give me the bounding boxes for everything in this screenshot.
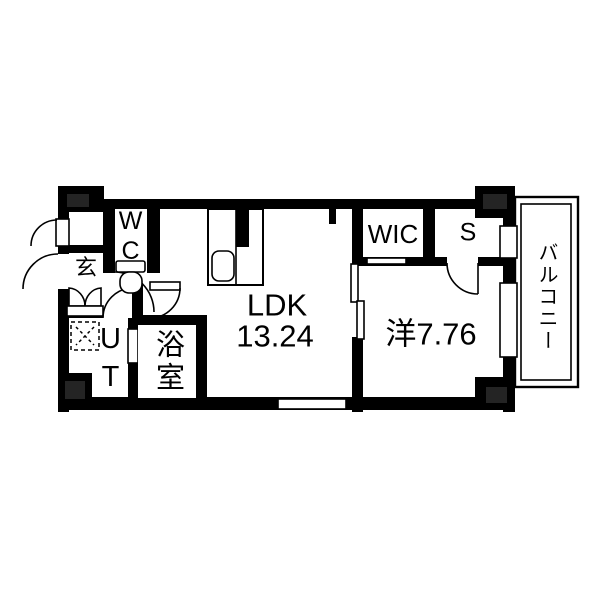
room-label-bathroom: 浴室	[153, 329, 182, 395]
door-arc-left-upper	[31, 220, 57, 246]
column-core-top-left	[67, 194, 89, 207]
door-leaf-hall-ldk	[150, 282, 180, 290]
door-gap-left-entrance	[58, 254, 69, 289]
window-right-upper	[500, 226, 517, 258]
room-label-ldk: LDK	[247, 290, 307, 321]
room-area-ldk: 13.24	[236, 321, 314, 352]
wall-ldk-divider-lower	[352, 337, 363, 412]
room-label-wc: WC	[118, 207, 143, 267]
door-leaf-left-upper	[56, 219, 69, 246]
column-core-bottom-right	[486, 387, 507, 403]
room-label-western-room: 洋7.76	[385, 319, 476, 350]
door-arc-s-closet	[447, 263, 478, 294]
wall-top	[96, 199, 477, 209]
wall-wic-s-divider	[423, 209, 435, 257]
closet-door-petal-left	[69, 288, 85, 306]
room-label-storage: S	[460, 221, 477, 246]
kitchen-counter	[208, 209, 263, 285]
floor-plan: 玄 WC UT 浴室 LDK 13.24 WIC S 洋7.76 バルコニー	[0, 0, 600, 600]
sliding-door-wic	[367, 258, 406, 264]
window-right-lower	[500, 283, 517, 357]
column-core-bottom-left	[65, 381, 85, 399]
room-label-wic: WIC	[368, 221, 419, 247]
door-gap-s-closet	[447, 257, 478, 266]
pipe-space	[236, 209, 249, 247]
column-core-top-right	[483, 194, 507, 209]
door-gap-ut	[103, 310, 132, 318]
window-bottom	[278, 399, 346, 409]
room-label-ut: UT	[96, 323, 125, 399]
room-label-genkan: 玄	[75, 257, 97, 279]
closet-door-petal-right	[85, 288, 101, 306]
wall-wc-right	[147, 209, 160, 273]
room-label-balcony: バルコニー	[536, 242, 556, 352]
sliding-door-ldk-bedroom	[351, 264, 364, 339]
wall-genkan-wc	[103, 209, 115, 273]
wall-stub-ldk-top	[329, 209, 336, 224]
shoe-cabinet	[67, 306, 103, 316]
door-arc-hall-ldk	[150, 288, 180, 318]
door-arc-entrance	[23, 254, 58, 289]
wall-ldk-divider-upper	[352, 199, 363, 265]
